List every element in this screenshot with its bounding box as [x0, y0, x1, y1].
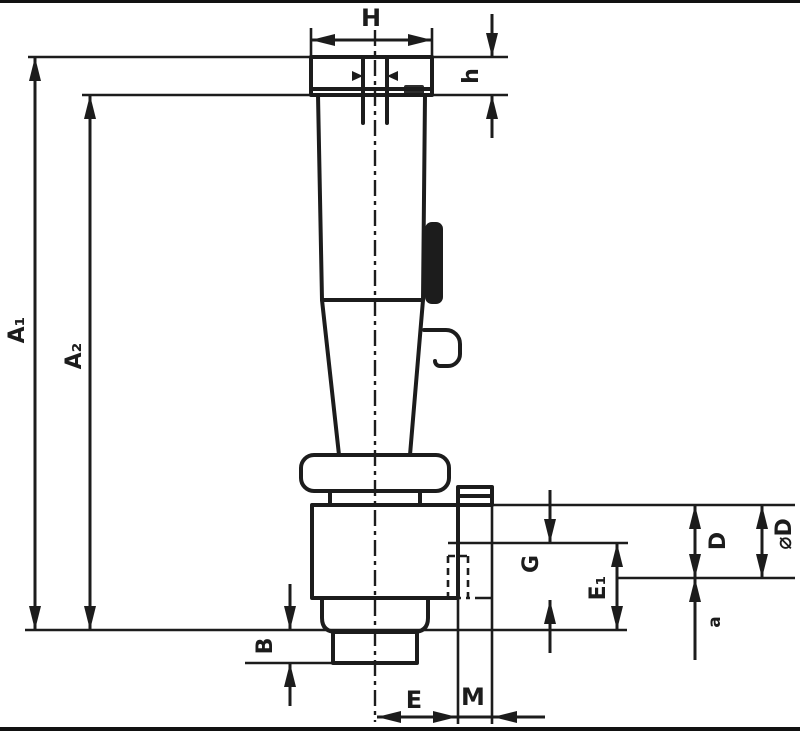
- bottom-edge-band: [0, 727, 800, 731]
- dimension-arrowheads: [29, 33, 768, 723]
- dim-label-pin-offset: M: [461, 683, 485, 711]
- technical-drawing-canvas: H h A₁ A₂ B G E₁ D ⌀D a E M: [0, 0, 800, 731]
- top-edge-band: [0, 0, 800, 3]
- dim-label-socket-depth: E₁: [586, 576, 611, 601]
- dimension-drawing: H h A₁ A₂ B G E₁ D ⌀D a E M: [0, 0, 800, 731]
- dim-label-overall-length: A₁: [5, 317, 30, 344]
- dim-label-step: a: [705, 616, 725, 627]
- dim-label-outer-diameter: ⌀D: [772, 518, 797, 550]
- knurl-marking-block: [425, 222, 443, 304]
- dim-label-body-length: A₂: [62, 343, 87, 370]
- shank-body: [312, 505, 458, 598]
- dimension-lines: [35, 14, 762, 717]
- extension-lines: [25, 28, 795, 724]
- dim-label-diameter: D: [706, 532, 731, 550]
- dim-label-head-height: h: [459, 68, 484, 84]
- dim-label-base-height: B: [253, 638, 278, 655]
- dim-label-collar-depth: G: [519, 555, 544, 573]
- dim-label-top-width: H: [361, 4, 381, 32]
- side-clip: [424, 330, 460, 366]
- dim-label-bottom-width: E: [406, 686, 422, 714]
- part-outline: [301, 57, 492, 663]
- dimension-labels: H h A₁ A₂ B G E₁ D ⌀D a E M: [5, 4, 797, 714]
